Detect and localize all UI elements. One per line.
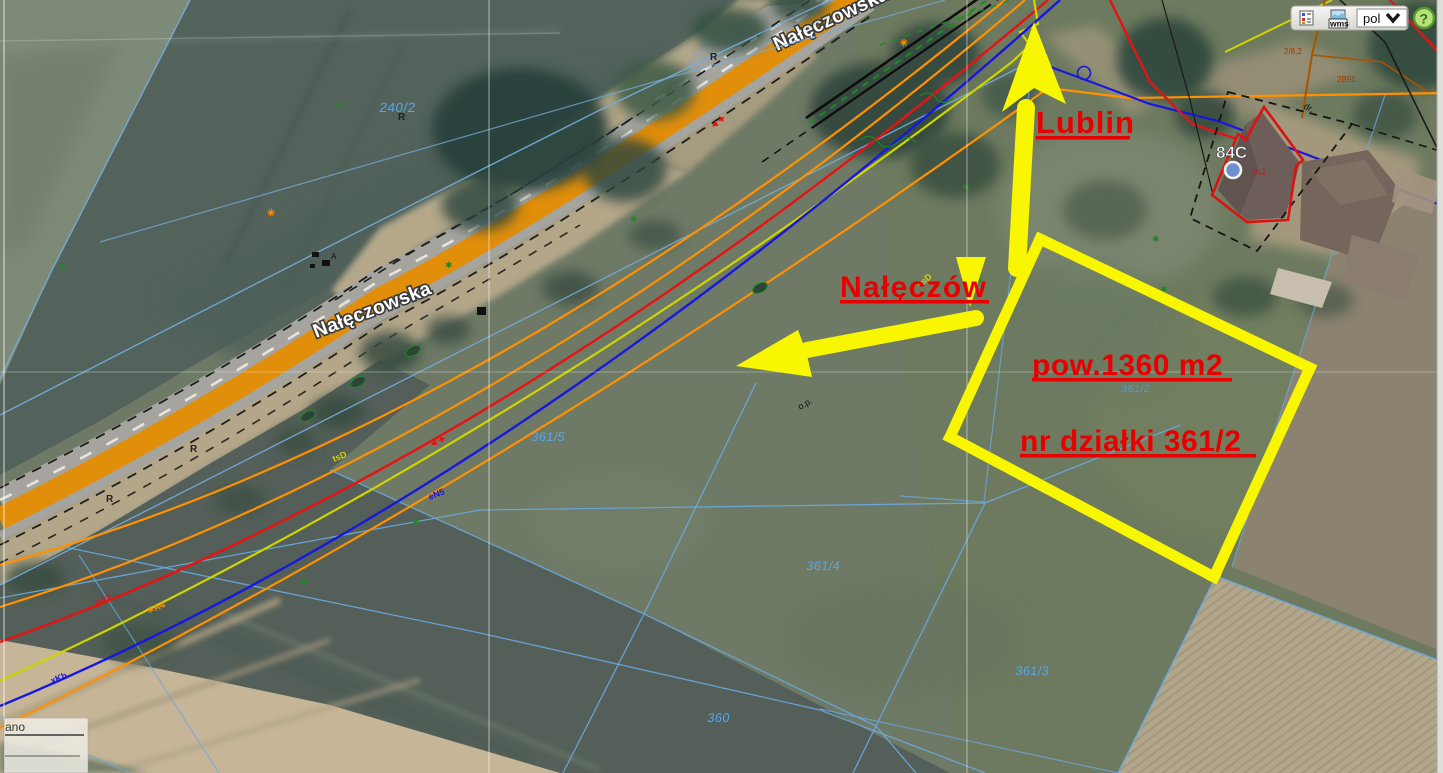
svg-text:✱: ✱ bbox=[300, 577, 308, 587]
svg-text:✱: ✱ bbox=[445, 260, 453, 270]
svg-text:2/8,2: 2/8,2 bbox=[1284, 47, 1302, 56]
svg-text:A: A bbox=[331, 252, 337, 261]
svg-text:pol: pol bbox=[1363, 11, 1380, 26]
svg-text:360: 360 bbox=[707, 711, 731, 725]
svg-text:✱: ✱ bbox=[336, 100, 344, 110]
svg-text:nr działki 361/2: nr działki 361/2 bbox=[1020, 425, 1241, 458]
svg-text:m2: m2 bbox=[1253, 167, 1266, 177]
svg-text:✱: ✱ bbox=[630, 214, 638, 224]
svg-text:✱: ✱ bbox=[58, 262, 66, 272]
svg-text:361/3: 361/3 bbox=[1015, 664, 1051, 678]
svg-text:R: R bbox=[190, 444, 198, 455]
svg-text:Nałęczów: Nałęczów bbox=[840, 271, 987, 304]
svg-text:Lublin: Lublin bbox=[1036, 105, 1135, 140]
svg-text:✱: ✱ bbox=[962, 182, 970, 192]
svg-text:84C: 84C bbox=[1216, 143, 1247, 162]
svg-text:pow.1360 m2: pow.1360 m2 bbox=[1032, 349, 1223, 382]
svg-text:ano: ano bbox=[5, 720, 25, 734]
svg-text:361/4: 361/4 bbox=[806, 559, 842, 573]
svg-text:2B91: 2B91 bbox=[1337, 75, 1356, 84]
svg-text:✱: ✱ bbox=[1152, 234, 1160, 244]
svg-text:240/2: 240/2 bbox=[379, 100, 417, 115]
svg-text:R: R bbox=[710, 52, 718, 63]
svg-text:361/2: 361/2 bbox=[1121, 383, 1151, 395]
svg-text:✱: ✱ bbox=[412, 517, 420, 527]
svg-text:?: ? bbox=[1420, 11, 1429, 27]
svg-text:361/5: 361/5 bbox=[531, 430, 567, 444]
svg-text:R: R bbox=[106, 494, 114, 505]
svg-text:wms: wms bbox=[1329, 19, 1349, 29]
